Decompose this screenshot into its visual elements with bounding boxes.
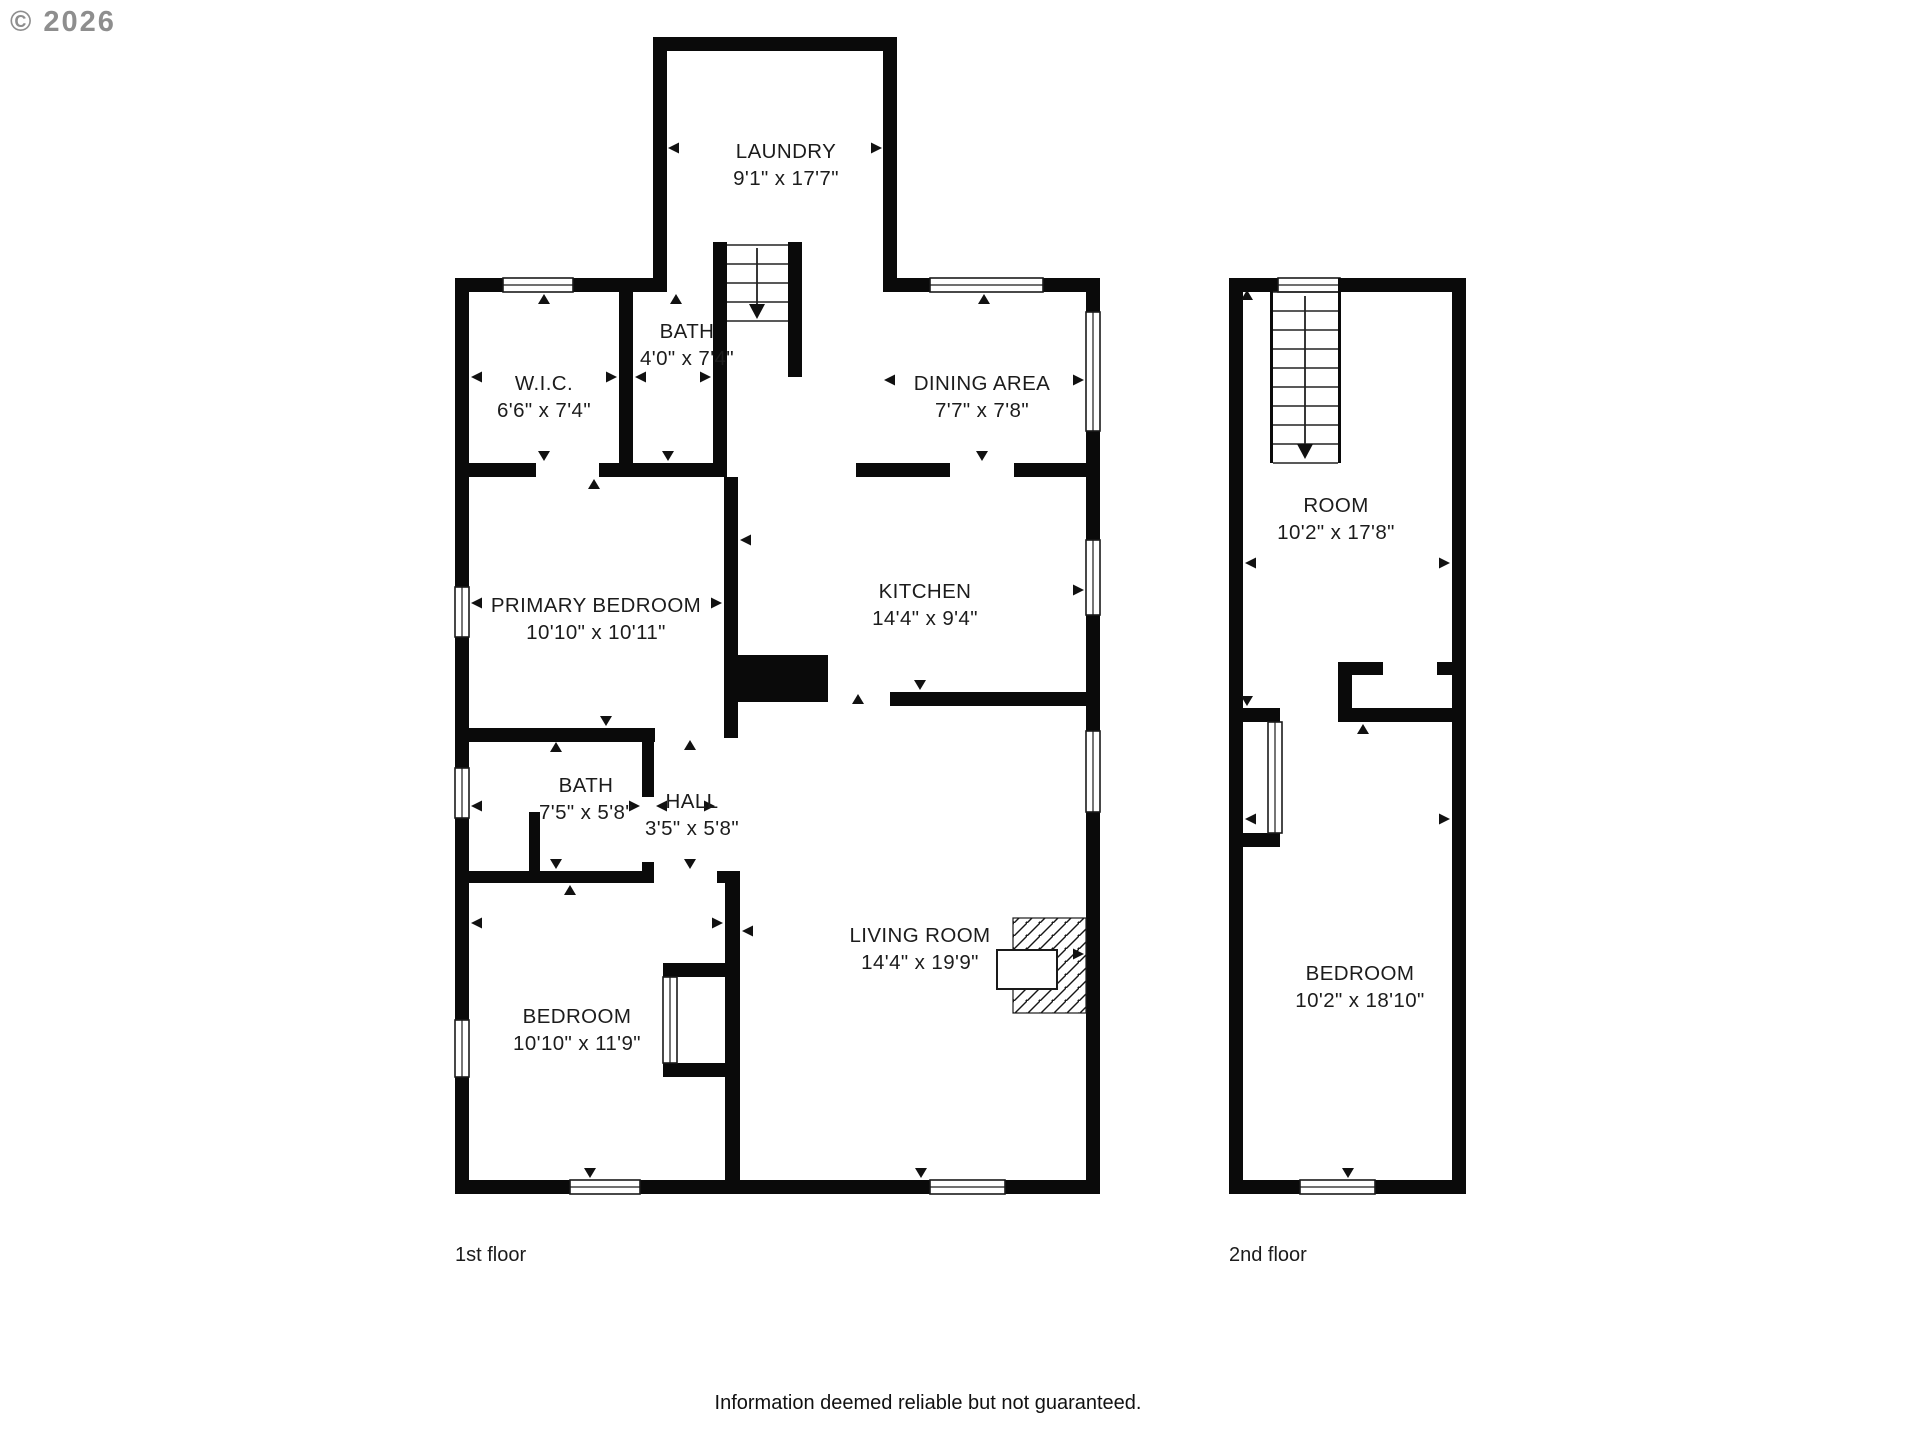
- dimension-marker-icon: [538, 294, 550, 304]
- door-opening: [950, 463, 1014, 477]
- dimension-marker-icon: [635, 372, 646, 383]
- wall: [663, 963, 740, 977]
- room-name-label: BATH: [559, 774, 614, 797]
- room-name-label: BATH: [660, 320, 715, 343]
- dimension-marker-icon: [684, 740, 696, 750]
- room-name-label: W.I.C.: [515, 372, 573, 395]
- wall: [1229, 278, 1243, 1194]
- dimension-marker-icon: [606, 372, 617, 383]
- room-dims-label: 10'2" x 18'10": [1295, 989, 1424, 1012]
- dimension-marker-icon: [1073, 375, 1084, 386]
- wall: [725, 877, 740, 1180]
- room-dims-label: 10'2" x 17'8": [1277, 521, 1395, 544]
- dimension-marker-icon: [978, 294, 990, 304]
- dimension-marker-icon: [1073, 585, 1084, 596]
- stair-down-arrow-icon: [749, 304, 765, 319]
- room-name-label: DINING AREA: [914, 372, 1051, 395]
- dimension-marker-icon: [600, 716, 612, 726]
- room-dims-label: 4'0" x 7'4": [640, 347, 734, 370]
- dimension-marker-icon: [711, 598, 722, 609]
- room-name-label: BEDROOM: [1306, 962, 1415, 985]
- dimension-marker-icon: [1245, 814, 1256, 825]
- dimension-marker-icon: [550, 742, 562, 752]
- wall: [663, 1063, 740, 1077]
- stair-down-arrow-icon: [1297, 444, 1313, 459]
- dimension-marker-icon: [471, 918, 482, 929]
- dimension-marker-icon: [852, 694, 864, 704]
- dimension-marker-icon: [884, 375, 895, 386]
- room-dims-label: 10'10" x 10'11": [526, 621, 666, 644]
- room-dims-label: 6'6" x 7'4": [497, 399, 591, 422]
- room-name-label: LIVING ROOM: [849, 924, 990, 947]
- wall: [731, 655, 828, 702]
- room-name-label: LAUNDRY: [736, 140, 836, 163]
- dimension-marker-icon: [471, 801, 482, 812]
- wall: [1338, 708, 1452, 722]
- dimension-marker-icon: [915, 1168, 927, 1178]
- room-dims-label: 3'5" x 5'8": [645, 817, 739, 840]
- dimension-marker-icon: [684, 859, 696, 869]
- dimension-marker-icon: [584, 1168, 596, 1178]
- dimension-marker-icon: [588, 479, 600, 489]
- dimension-marker-icon: [670, 294, 682, 304]
- copyright-watermark: © 2026: [10, 6, 116, 39]
- stair-rail: [1338, 278, 1341, 463]
- wall: [455, 728, 655, 742]
- wall: [890, 692, 1086, 706]
- dimension-marker-icon: [668, 143, 679, 154]
- first-floor-label: 1st floor: [455, 1244, 526, 1267]
- wall: [653, 37, 667, 292]
- dimension-marker-icon: [1439, 558, 1450, 569]
- dimension-marker-icon: [742, 926, 753, 937]
- dimension-marker-icon: [871, 143, 882, 154]
- dimension-marker-icon: [564, 885, 576, 895]
- dimension-marker-icon: [471, 598, 482, 609]
- room-dims-label: 14'4" x 9'4": [872, 607, 978, 630]
- dimension-marker-icon: [914, 680, 926, 690]
- wall: [1338, 662, 1383, 675]
- floor-plan-drawing: LAUNDRY9'1" x 17'7"BATH4'0" x 7'4"W.I.C.…: [0, 0, 1920, 1440]
- room-name-label: HALL: [666, 790, 719, 813]
- dimension-marker-icon: [1439, 814, 1450, 825]
- room-name-label: PRIMARY BEDROOM: [491, 594, 701, 617]
- wall: [883, 37, 897, 292]
- disclaimer-text: Information deemed reliable but not guar…: [0, 1392, 1856, 1415]
- second-floor-label: 2nd floor: [1229, 1244, 1307, 1267]
- wall: [1229, 833, 1280, 847]
- room-dims-label: 10'10" x 11'9": [513, 1032, 641, 1055]
- dimension-marker-icon: [1357, 724, 1369, 734]
- room-dims-label: 9'1" x 17'7": [733, 167, 839, 190]
- dimension-marker-icon: [700, 372, 711, 383]
- room-dims-label: 7'7" x 7'8": [935, 399, 1029, 422]
- room-name-label: BEDROOM: [523, 1005, 632, 1028]
- wall: [1437, 662, 1452, 675]
- wall: [653, 37, 897, 51]
- wall: [619, 292, 633, 463]
- wall: [1452, 278, 1466, 1194]
- dimension-marker-icon: [662, 451, 674, 461]
- wall: [1229, 278, 1466, 292]
- dimension-marker-icon: [1245, 558, 1256, 569]
- room-name-label: KITCHEN: [879, 580, 972, 603]
- stair-rail: [1270, 278, 1273, 463]
- dimension-marker-icon: [550, 859, 562, 869]
- dimension-marker-icon: [471, 372, 482, 383]
- dimension-marker-icon: [740, 535, 751, 546]
- wall: [788, 242, 802, 377]
- floorplan-sheet: LAUNDRY9'1" x 17'7"BATH4'0" x 7'4"W.I.C.…: [0, 0, 1920, 1440]
- room-dims-label: 14'4" x 19'9": [861, 951, 979, 974]
- wall: [1229, 708, 1280, 722]
- dimension-marker-icon: [1342, 1168, 1354, 1178]
- room-dims-label: 7'5" x 5'8": [539, 801, 633, 824]
- dimension-marker-icon: [712, 918, 723, 929]
- door-opening: [536, 463, 599, 477]
- fireplace-firebox: [997, 950, 1057, 989]
- dimension-marker-icon: [976, 451, 988, 461]
- dimension-marker-icon: [538, 451, 550, 461]
- room-name-label: ROOM: [1303, 494, 1368, 517]
- wall: [455, 871, 654, 883]
